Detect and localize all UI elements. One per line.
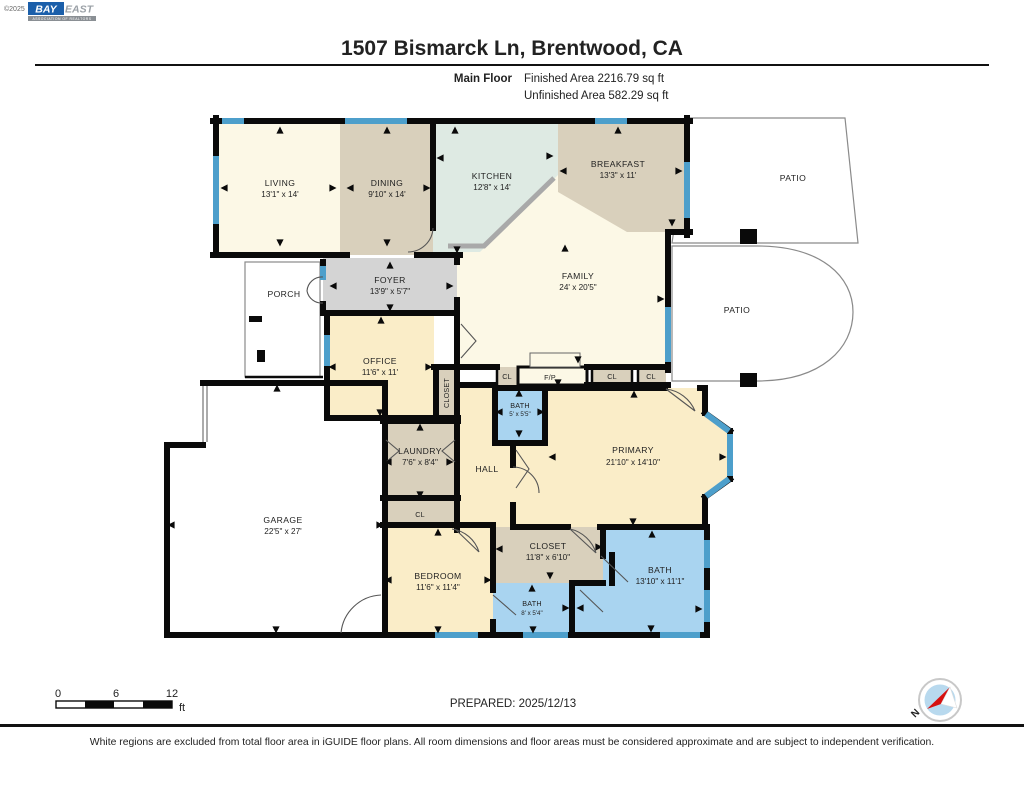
prepared-date: PREPARED: 2025/12/13 (450, 698, 576, 710)
room-label-living: LIVING (265, 178, 296, 188)
room-dims-bath-primary: 13'10" x 11'1" (636, 577, 685, 586)
room-label-cl1: CL (502, 372, 512, 381)
room-dims-primary: 21'10" x 14'10" (606, 458, 660, 467)
scale-tick-12: 12 (166, 688, 178, 700)
room-dims-bath-hall: 8' x 5'4" (521, 610, 542, 617)
room-dims-office: 11'6" x 11' (362, 368, 399, 377)
room-label-laundry: LAUNDRY (398, 446, 442, 456)
room-label-patio-right: PATIO (724, 305, 751, 315)
unfinished-area: Unfinished Area 582.29 sq ft (524, 90, 669, 102)
room-dims-bath-small: 5' x 5'5" (509, 411, 530, 418)
room-label-bedroom: BEDROOM (414, 571, 461, 581)
scale-tick-0: 0 (55, 688, 61, 700)
room-label-cl2: CL (607, 372, 617, 381)
room-label-kitchen: KITCHEN (472, 171, 513, 181)
compass-icon: N (909, 679, 961, 721)
room-label-primary: PRIMARY (612, 445, 654, 455)
room-label-breakfast: BREAKFAST (591, 159, 646, 169)
patio-right-region (672, 246, 853, 381)
room-label-garage: GARAGE (263, 515, 302, 525)
room-label-closet-primary: CLOSET (530, 541, 567, 551)
room-label-patio-top: PATIO (780, 173, 807, 183)
logo: ©2025 BAY EAST ASSOCIATION OF REALTORS (4, 2, 96, 21)
room-label-closet-office: CLOSET (442, 378, 451, 408)
room-label-hall: HALL (475, 464, 498, 474)
room-dims-family: 24' x 20'5" (559, 283, 597, 292)
floorplan-canvas: ©2025 BAY EAST ASSOCIATION OF REALTORS 1… (0, 0, 1024, 791)
copyright-text: ©2025 (4, 5, 25, 13)
room-label-cl3: CL (646, 372, 656, 381)
patio-top-region (672, 118, 858, 243)
room-dims-foyer: 13'9" x 5'7" (370, 287, 410, 296)
room-dims-dining: 9'10" x 14' (368, 190, 406, 199)
room-dims-living: 13'1" x 14' (261, 190, 299, 199)
logo-bay-text: BAY (35, 4, 57, 16)
room-label-porch: PORCH (267, 289, 300, 299)
room-label-bath-small: BATH (510, 401, 529, 410)
room-dims-kitchen: 12'8" x 14' (473, 183, 511, 192)
scale-bar: 0 6 12 ft (55, 688, 185, 714)
scale-tick-6: 6 (113, 688, 119, 700)
disclaimer-text: White regions are excluded from total fl… (90, 737, 934, 748)
footer-rule (0, 724, 1024, 727)
room-label-foyer: FOYER (374, 275, 406, 285)
room-dims-laundry: 7'6" x 8'4" (402, 458, 438, 467)
room-label-bath-hall: BATH (522, 599, 541, 608)
room-label-office: OFFICE (363, 356, 397, 366)
room-label-bath-primary: BATH (648, 565, 672, 575)
logo-tagline-text: ASSOCIATION OF REALTORS (33, 17, 92, 21)
logo-east-text: EAST (65, 4, 95, 16)
finished-area: Finished Area 2216.79 sq ft (524, 73, 665, 85)
page-title: 1507 Bismarck Ln, Brentwood, CA (341, 37, 683, 60)
title-rule (35, 64, 989, 66)
floorplan-page: ©2025 BAY EAST ASSOCIATION OF REALTORS 1… (0, 0, 1024, 791)
floor-label: Main Floor (454, 73, 513, 85)
room-dims-garage: 22'5" x 27' (264, 527, 302, 536)
room-label-fp: F/P (544, 373, 556, 382)
room-label-family: FAMILY (562, 271, 594, 281)
room-dims-closet-primary: 11'8" x 6'10" (526, 553, 570, 562)
room-dims-breakfast: 13'3" x 11' (600, 171, 637, 180)
room-dims-bedroom: 11'6" x 11'4" (416, 583, 460, 592)
scale-unit: ft (179, 702, 185, 714)
room-label-dining: DINING (371, 178, 403, 188)
room-label-cl-laundry: CL (415, 510, 425, 519)
